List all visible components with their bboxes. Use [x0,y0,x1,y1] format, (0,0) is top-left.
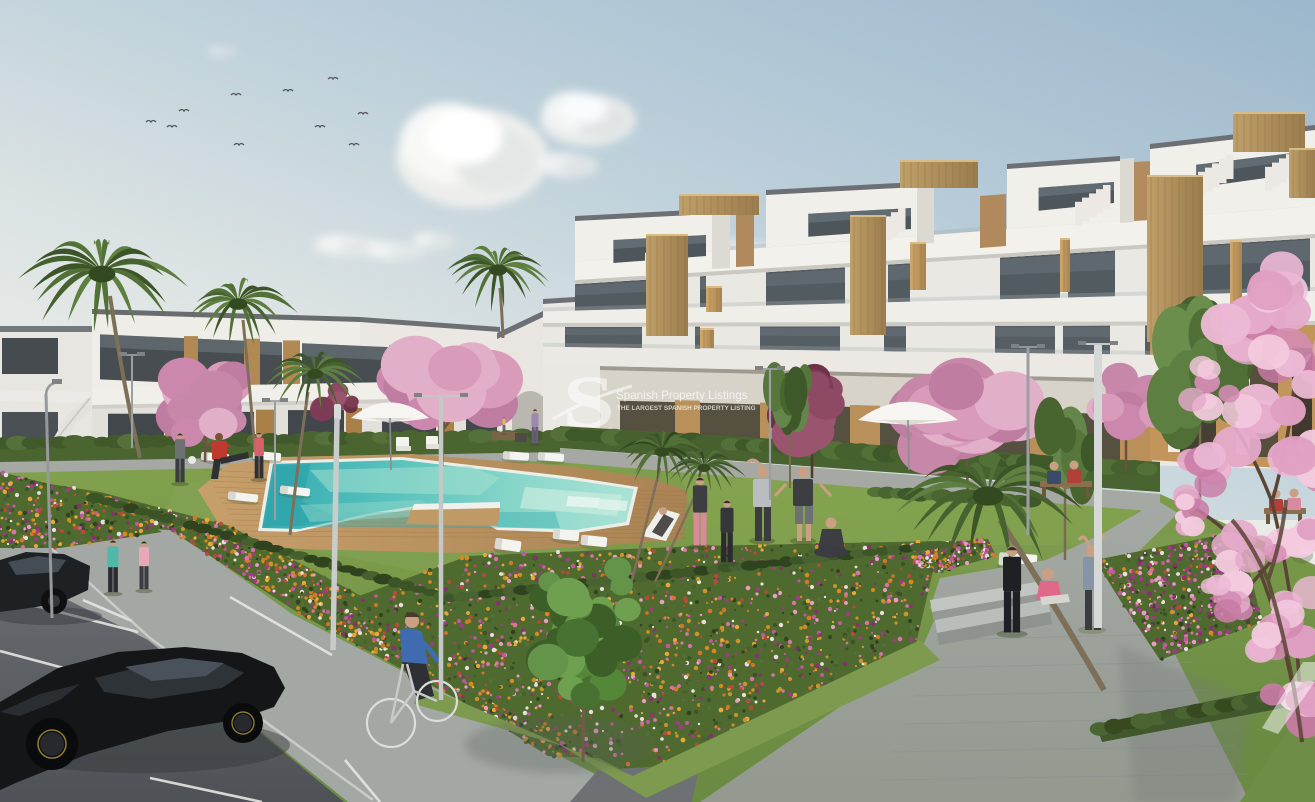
svg-text:THE LARGEST SPANISH PROPERTY L: THE LARGEST SPANISH PROPERTY LISTING [617,405,756,412]
svg-text:S: S [563,362,615,443]
svg-text:Spanish Property Listings: Spanish Property Listings [616,389,748,402]
